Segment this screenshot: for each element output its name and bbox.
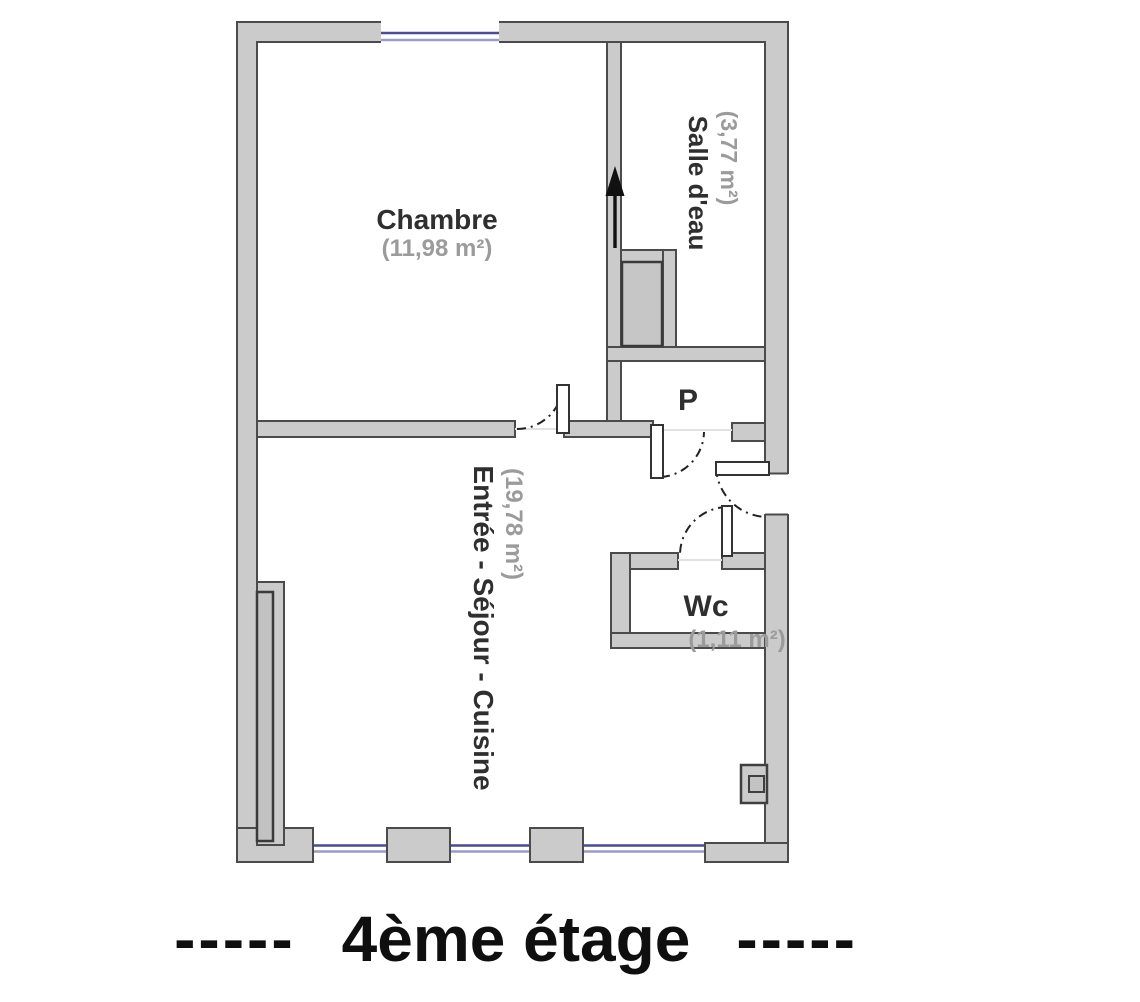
entrance-door-leaf bbox=[716, 462, 769, 475]
placard-door-arc bbox=[661, 432, 704, 477]
room-labels: Chambre (11,98 m²) Salle d'eau (3,77 m²)… bbox=[376, 111, 785, 791]
salledeau-name-label: Salle d'eau bbox=[683, 116, 713, 251]
entrance-opening bbox=[763, 474, 790, 515]
door-leaves bbox=[557, 385, 769, 556]
bottom-pier-2 bbox=[530, 828, 583, 862]
placard-name-label: P bbox=[678, 384, 698, 417]
wc-name-label: Wc bbox=[684, 590, 729, 623]
wc-area-label: (1,11 m²) bbox=[688, 626, 785, 653]
right-wall-duct-inner bbox=[749, 776, 764, 792]
chambre-area-label: (11,98 m²) bbox=[382, 235, 493, 262]
arrow-stem bbox=[613, 194, 616, 248]
windows-bottom bbox=[313, 826, 705, 864]
wall-placard-sejour-right bbox=[732, 423, 765, 441]
entrance-gap bbox=[763, 474, 790, 514]
caption-right-dashes: ----- bbox=[736, 902, 858, 976]
salledeau-fixture bbox=[622, 262, 662, 346]
wc-door-arc bbox=[680, 507, 727, 554]
wall-niche-vertical bbox=[663, 250, 676, 347]
floor-caption: ----- 4ème étage ----- bbox=[0, 902, 1032, 976]
window-top bbox=[381, 20, 499, 43]
duct-left-wall bbox=[257, 592, 273, 841]
sejour-name-label: Entrée - Séjour - Cuisine bbox=[468, 465, 499, 790]
bottom-right-corner-block bbox=[705, 843, 788, 862]
floor-plan-page: Chambre (11,98 m²) Salle d'eau (3,77 m²)… bbox=[0, 0, 1140, 1002]
caption-left-dashes: ----- bbox=[174, 902, 296, 976]
wc-door-leaf bbox=[722, 506, 732, 556]
wall-placard-sejour-left bbox=[564, 421, 653, 437]
sejour-area-label: (19,78 m²) bbox=[500, 468, 527, 580]
bottom-pier-1 bbox=[387, 828, 450, 862]
floor-plan-drawing: Chambre (11,98 m²) Salle d'eau (3,77 m²)… bbox=[0, 0, 1140, 1002]
placard-door-leaf bbox=[651, 425, 663, 478]
floor-title: 4ème étage bbox=[342, 902, 691, 976]
salledeau-area-label: (3,77 m²) bbox=[716, 111, 742, 206]
wall-salledeau-placard bbox=[607, 347, 765, 361]
chambre-name-label: Chambre bbox=[376, 204, 497, 235]
wall-chambre-sejour bbox=[257, 421, 515, 437]
chambre-door-leaf bbox=[557, 385, 569, 433]
